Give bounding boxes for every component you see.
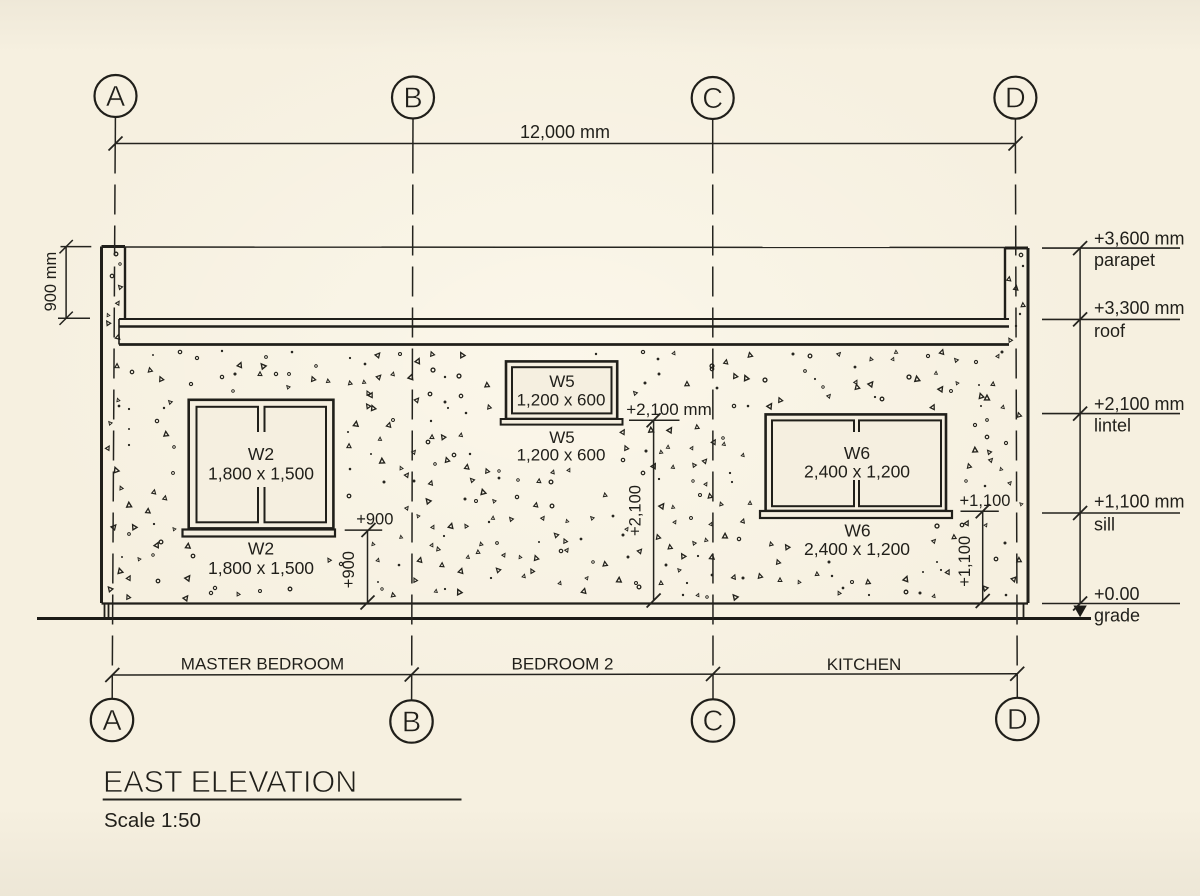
svg-text:W2: W2 — [248, 444, 274, 464]
svg-text:Scale 1:50: Scale 1:50 — [104, 809, 201, 832]
svg-text:+1,100: +1,100 — [956, 536, 974, 587]
svg-text:W5: W5 — [549, 372, 575, 391]
svg-text:KITCHEN: KITCHEN — [827, 655, 902, 674]
svg-text:1,200 x 600: 1,200 x 600 — [517, 446, 606, 465]
svg-text:1,800 x 1,500: 1,800 x 1,500 — [208, 558, 314, 578]
svg-text:B: B — [402, 707, 421, 739]
svg-text:roof: roof — [1094, 321, 1126, 341]
svg-text:C: C — [703, 706, 724, 738]
svg-text:2,400 x 1,200: 2,400 x 1,200 — [804, 539, 910, 559]
svg-text:sill: sill — [1094, 515, 1115, 535]
svg-text:W6: W6 — [844, 443, 870, 463]
svg-text:1,800 x 1,500: 1,800 x 1,500 — [208, 464, 314, 484]
svg-text:parapet: parapet — [1094, 250, 1155, 270]
svg-text:+2,100: +2,100 — [627, 485, 645, 536]
svg-text:grade: grade — [1094, 606, 1140, 626]
svg-text:A: A — [106, 81, 126, 113]
svg-text:12,000 mm: 12,000 mm — [520, 122, 610, 142]
svg-text:+1,100 mm: +1,100 mm — [1094, 492, 1185, 512]
svg-text:B: B — [403, 83, 422, 115]
svg-text:+3,600 mm: +3,600 mm — [1094, 229, 1185, 249]
svg-text:+900: +900 — [356, 511, 393, 529]
svg-text:D: D — [1007, 704, 1028, 736]
svg-text:+2,100 mm: +2,100 mm — [1094, 394, 1185, 414]
svg-text:BEDROOM 2: BEDROOM 2 — [511, 655, 613, 674]
svg-text:D: D — [1005, 83, 1026, 115]
svg-text:C: C — [702, 83, 723, 115]
svg-text:W5: W5 — [549, 428, 575, 447]
svg-text:W2: W2 — [248, 539, 274, 559]
svg-text:+900: +900 — [340, 551, 358, 588]
svg-text:A: A — [102, 705, 122, 737]
svg-text:+3,300 mm: +3,300 mm — [1094, 298, 1185, 318]
svg-text:+0.00: +0.00 — [1094, 584, 1140, 604]
svg-text:900 mm: 900 mm — [42, 252, 60, 312]
svg-text:MASTER BEDROOM: MASTER BEDROOM — [181, 655, 344, 674]
svg-text:+2,100 mm: +2,100 mm — [626, 400, 712, 419]
svg-text:1,200 x 600: 1,200 x 600 — [517, 391, 606, 410]
svg-text:+1,100: +1,100 — [960, 492, 1011, 510]
svg-text:W6: W6 — [844, 521, 870, 541]
svg-text:lintel: lintel — [1094, 416, 1131, 436]
svg-text:EAST ELEVATION: EAST ELEVATION — [103, 765, 357, 799]
svg-text:2,400 x 1,200: 2,400 x 1,200 — [804, 462, 910, 482]
